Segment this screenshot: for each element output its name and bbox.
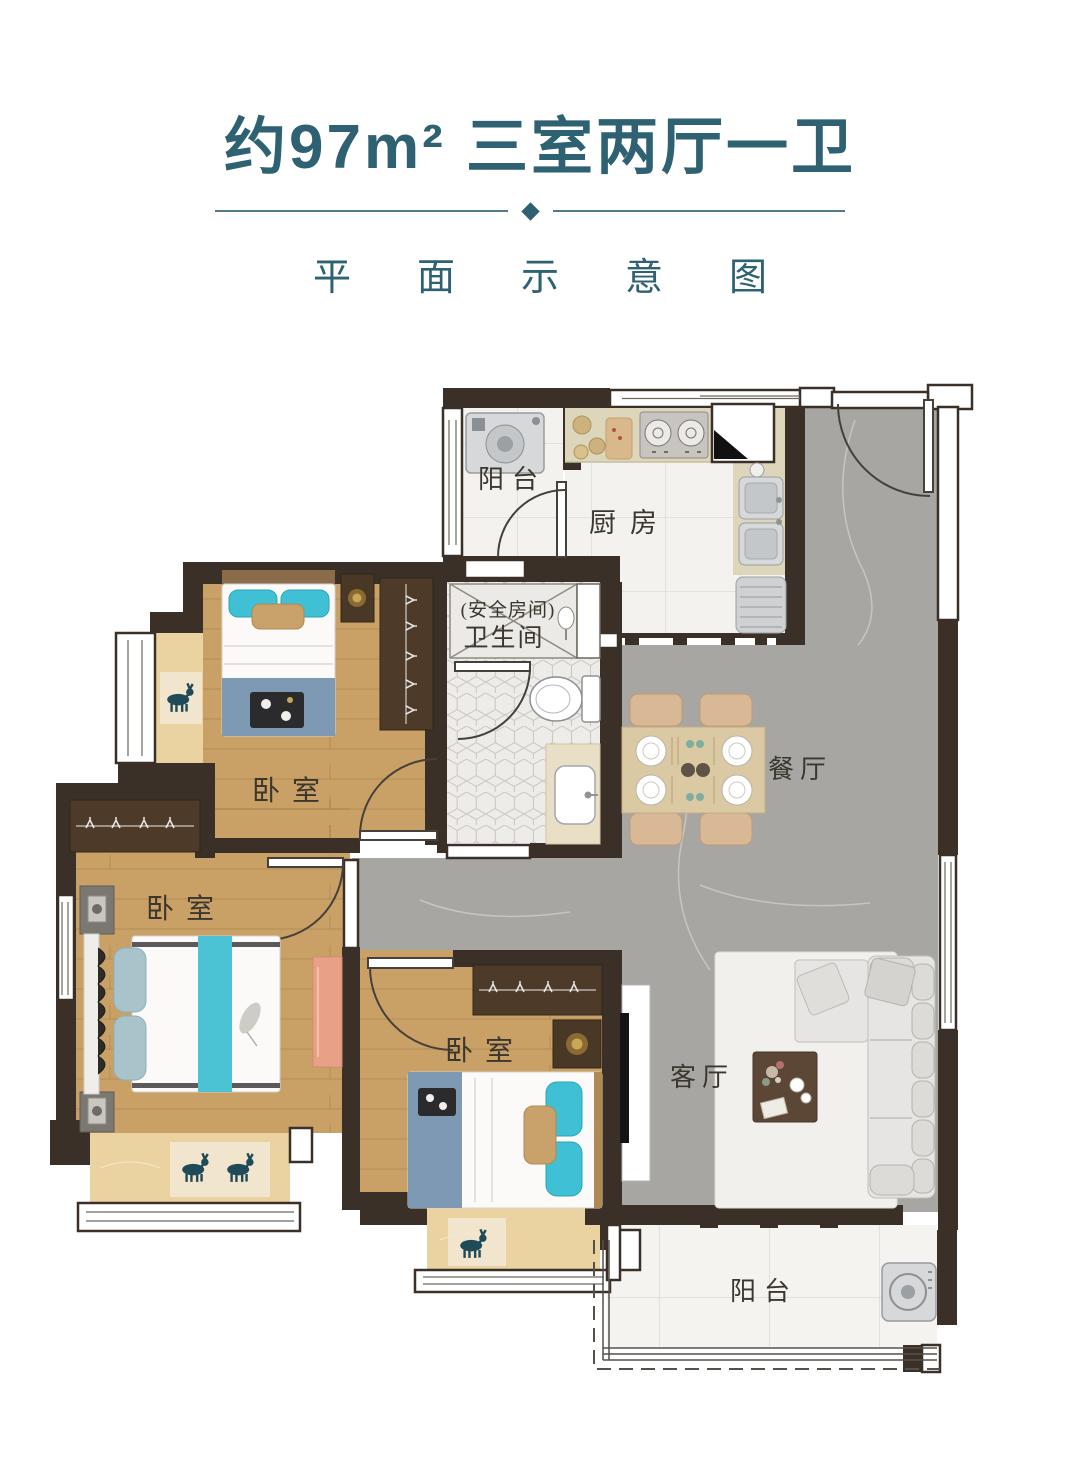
- label-kitchen: 厨房: [589, 508, 671, 538]
- label-bedroom-top: 卧室: [252, 775, 332, 807]
- label-safe-room: (安全房间): [461, 599, 556, 621]
- label-balcony-bottom: 阳台: [730, 1277, 798, 1306]
- label-balcony-top: 阳台: [478, 465, 546, 494]
- label-bedroom-left: 卧室: [146, 893, 226, 925]
- label-dining: 餐厅: [768, 755, 832, 784]
- label-bathroom: 卫生间: [463, 624, 544, 652]
- label-bedroom-bottom: 卧室: [445, 1035, 525, 1067]
- bedroom-top-furniture: [222, 570, 433, 736]
- living-room-furniture: [715, 952, 935, 1208]
- washing-machine-icon: [466, 413, 544, 473]
- floor-plan-drawing: 阳台 厨房 (安全房间) 卫生间 卧室 卧室 卧室 餐厅 客厅 阳台: [0, 0, 1080, 1460]
- floor-plan-page: 约97m² 三室两厅一卫 平面示意图: [0, 0, 1080, 1460]
- label-living: 客厅: [670, 1063, 734, 1092]
